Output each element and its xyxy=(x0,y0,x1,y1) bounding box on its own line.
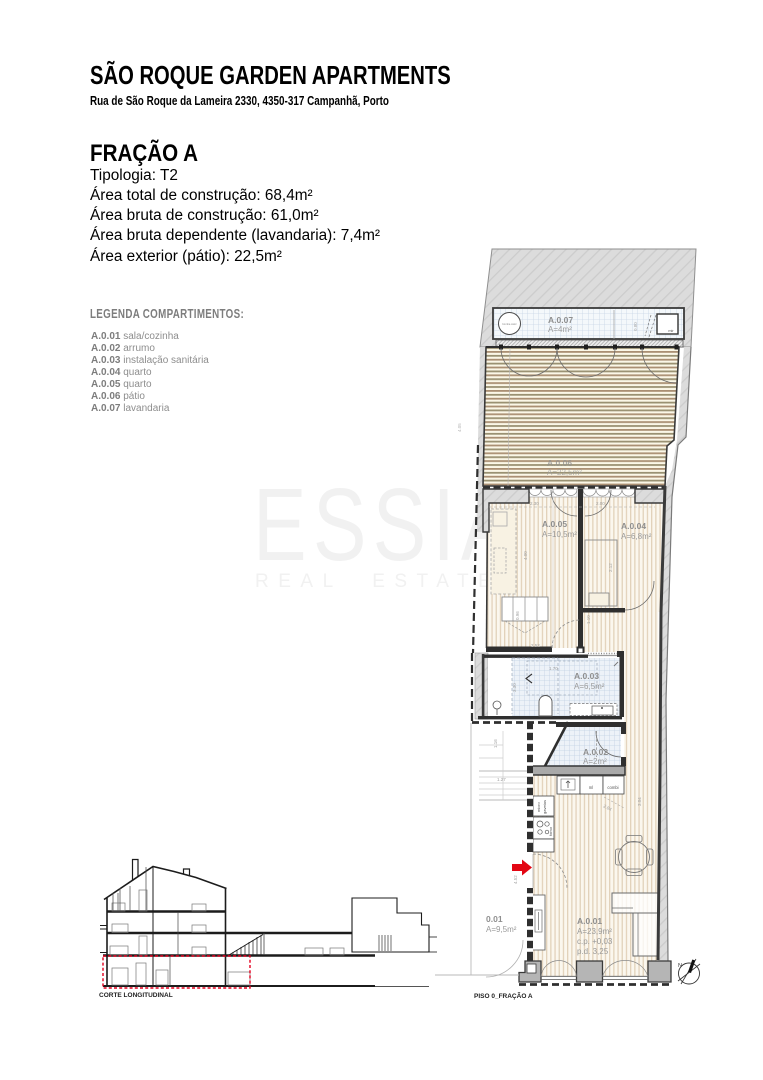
svg-text:gavetas: gavetas xyxy=(542,800,547,814)
svg-text:0.80: 0.80 xyxy=(633,322,638,331)
svg-text:ml: ml xyxy=(589,785,593,790)
svg-text:A.0.05: A.0.05 xyxy=(542,519,567,529)
svg-text:0.01: 0.01 xyxy=(486,914,503,924)
svg-text:combi: combi xyxy=(607,785,618,790)
svg-text:A.0.02: A.0.02 xyxy=(583,747,608,757)
svg-text:A=22,5m²: A=22,5m² xyxy=(547,468,582,477)
svg-text:bomba calor: bomba calor xyxy=(502,322,516,326)
svg-text:1.70: 1.70 xyxy=(549,666,558,671)
svg-text:2.52: 2.52 xyxy=(531,643,540,648)
svg-text:A.0.03: A.0.03 xyxy=(574,671,599,681)
svg-text:p.d. 3,25: p.d. 3,25 xyxy=(577,947,609,956)
svg-text:A=4m²: A=4m² xyxy=(548,325,572,334)
svg-text:N: N xyxy=(678,963,682,969)
svg-text:A.0.07: A.0.07 xyxy=(548,315,573,325)
svg-text:micro: micro xyxy=(536,801,541,812)
svg-text:PISO 0_FRAÇÃO A: PISO 0_FRAÇÃO A xyxy=(474,991,533,1000)
svg-text:A=9,5m²: A=9,5m² xyxy=(486,925,517,934)
svg-text:2.30: 2.30 xyxy=(530,501,539,506)
svg-text:mir: mir xyxy=(668,329,674,333)
svg-text:4.00: 4.00 xyxy=(523,551,528,560)
svg-text:A=10,5m²: A=10,5m² xyxy=(542,530,577,539)
svg-text:0.96: 0.96 xyxy=(515,611,520,620)
svg-text:A.0.06: A.0.06 xyxy=(547,458,572,468)
svg-text:2.00: 2.00 xyxy=(596,501,605,506)
svg-text:1.10: 1.10 xyxy=(586,615,591,624)
svg-text:A.0.01: A.0.01 xyxy=(577,916,602,926)
svg-text:1.27: 1.27 xyxy=(497,777,506,782)
svg-text:forno: forno xyxy=(548,826,553,836)
svg-text:3.04: 3.04 xyxy=(637,797,642,806)
svg-text:1.16: 1.16 xyxy=(493,739,498,748)
svg-text:A.0.04: A.0.04 xyxy=(621,521,646,531)
svg-text:A=2m²: A=2m² xyxy=(583,757,607,766)
svg-text:3.30: 3.30 xyxy=(512,683,517,692)
svg-text:4.05: 4.05 xyxy=(457,423,462,432)
svg-text:A=23,9m²: A=23,9m² xyxy=(577,927,612,936)
svg-text:c.p. +0,03: c.p. +0,03 xyxy=(577,937,613,946)
svg-text:A=6,8m²: A=6,8m² xyxy=(621,532,652,541)
svg-text:A=6,5m²: A=6,5m² xyxy=(574,682,605,691)
svg-text:4.52: 4.52 xyxy=(513,875,518,884)
svg-text:2.12: 2.12 xyxy=(608,563,613,572)
svg-text:CORTE LONGITUDINAL: CORTE LONGITUDINAL xyxy=(99,992,173,999)
